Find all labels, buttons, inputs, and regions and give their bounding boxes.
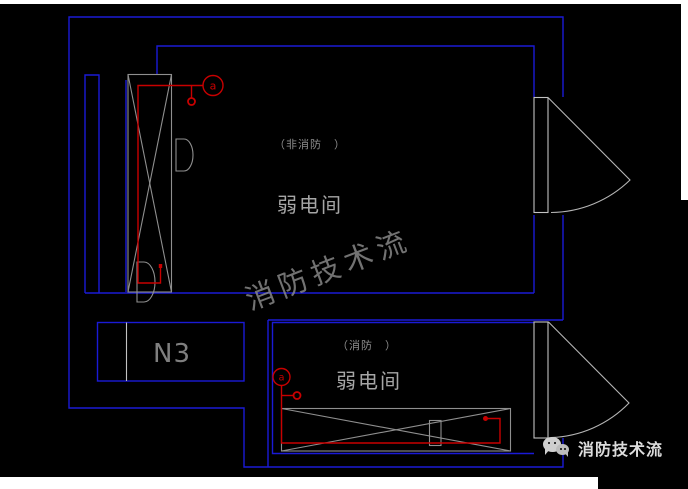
cad-floorplan-screenshot: a a （非消防 ） 弱电间 （消防 ） 弱电间 N3 消防技术流 消防技术流 [0,0,688,489]
lower-circuit-tag: a [279,373,285,384]
duct-box-label: N3 [153,339,191,369]
lower-room-name-label: 弱电间 [336,365,402,394]
lower-room-category-label: （消防 ） [337,337,397,353]
brand-footer: 消防技术流 [543,436,663,460]
door-handle-icon [176,139,193,171]
upper-circuit-tag: a [210,80,217,93]
wire-terminal-icon [159,264,162,268]
door-symbols [534,98,630,439]
upper-room-category-label: （非消防 ） [274,136,346,152]
wire-terminal-icon [483,416,488,421]
brand-name: 消防技术流 [578,436,663,460]
detector-icon [294,392,301,399]
wall-lines [69,17,563,467]
detector-icon [188,98,195,105]
wechat-icon [543,436,573,460]
upper-room-name-label: 弱电间 [277,189,343,218]
door-handle-icon [137,262,155,302]
